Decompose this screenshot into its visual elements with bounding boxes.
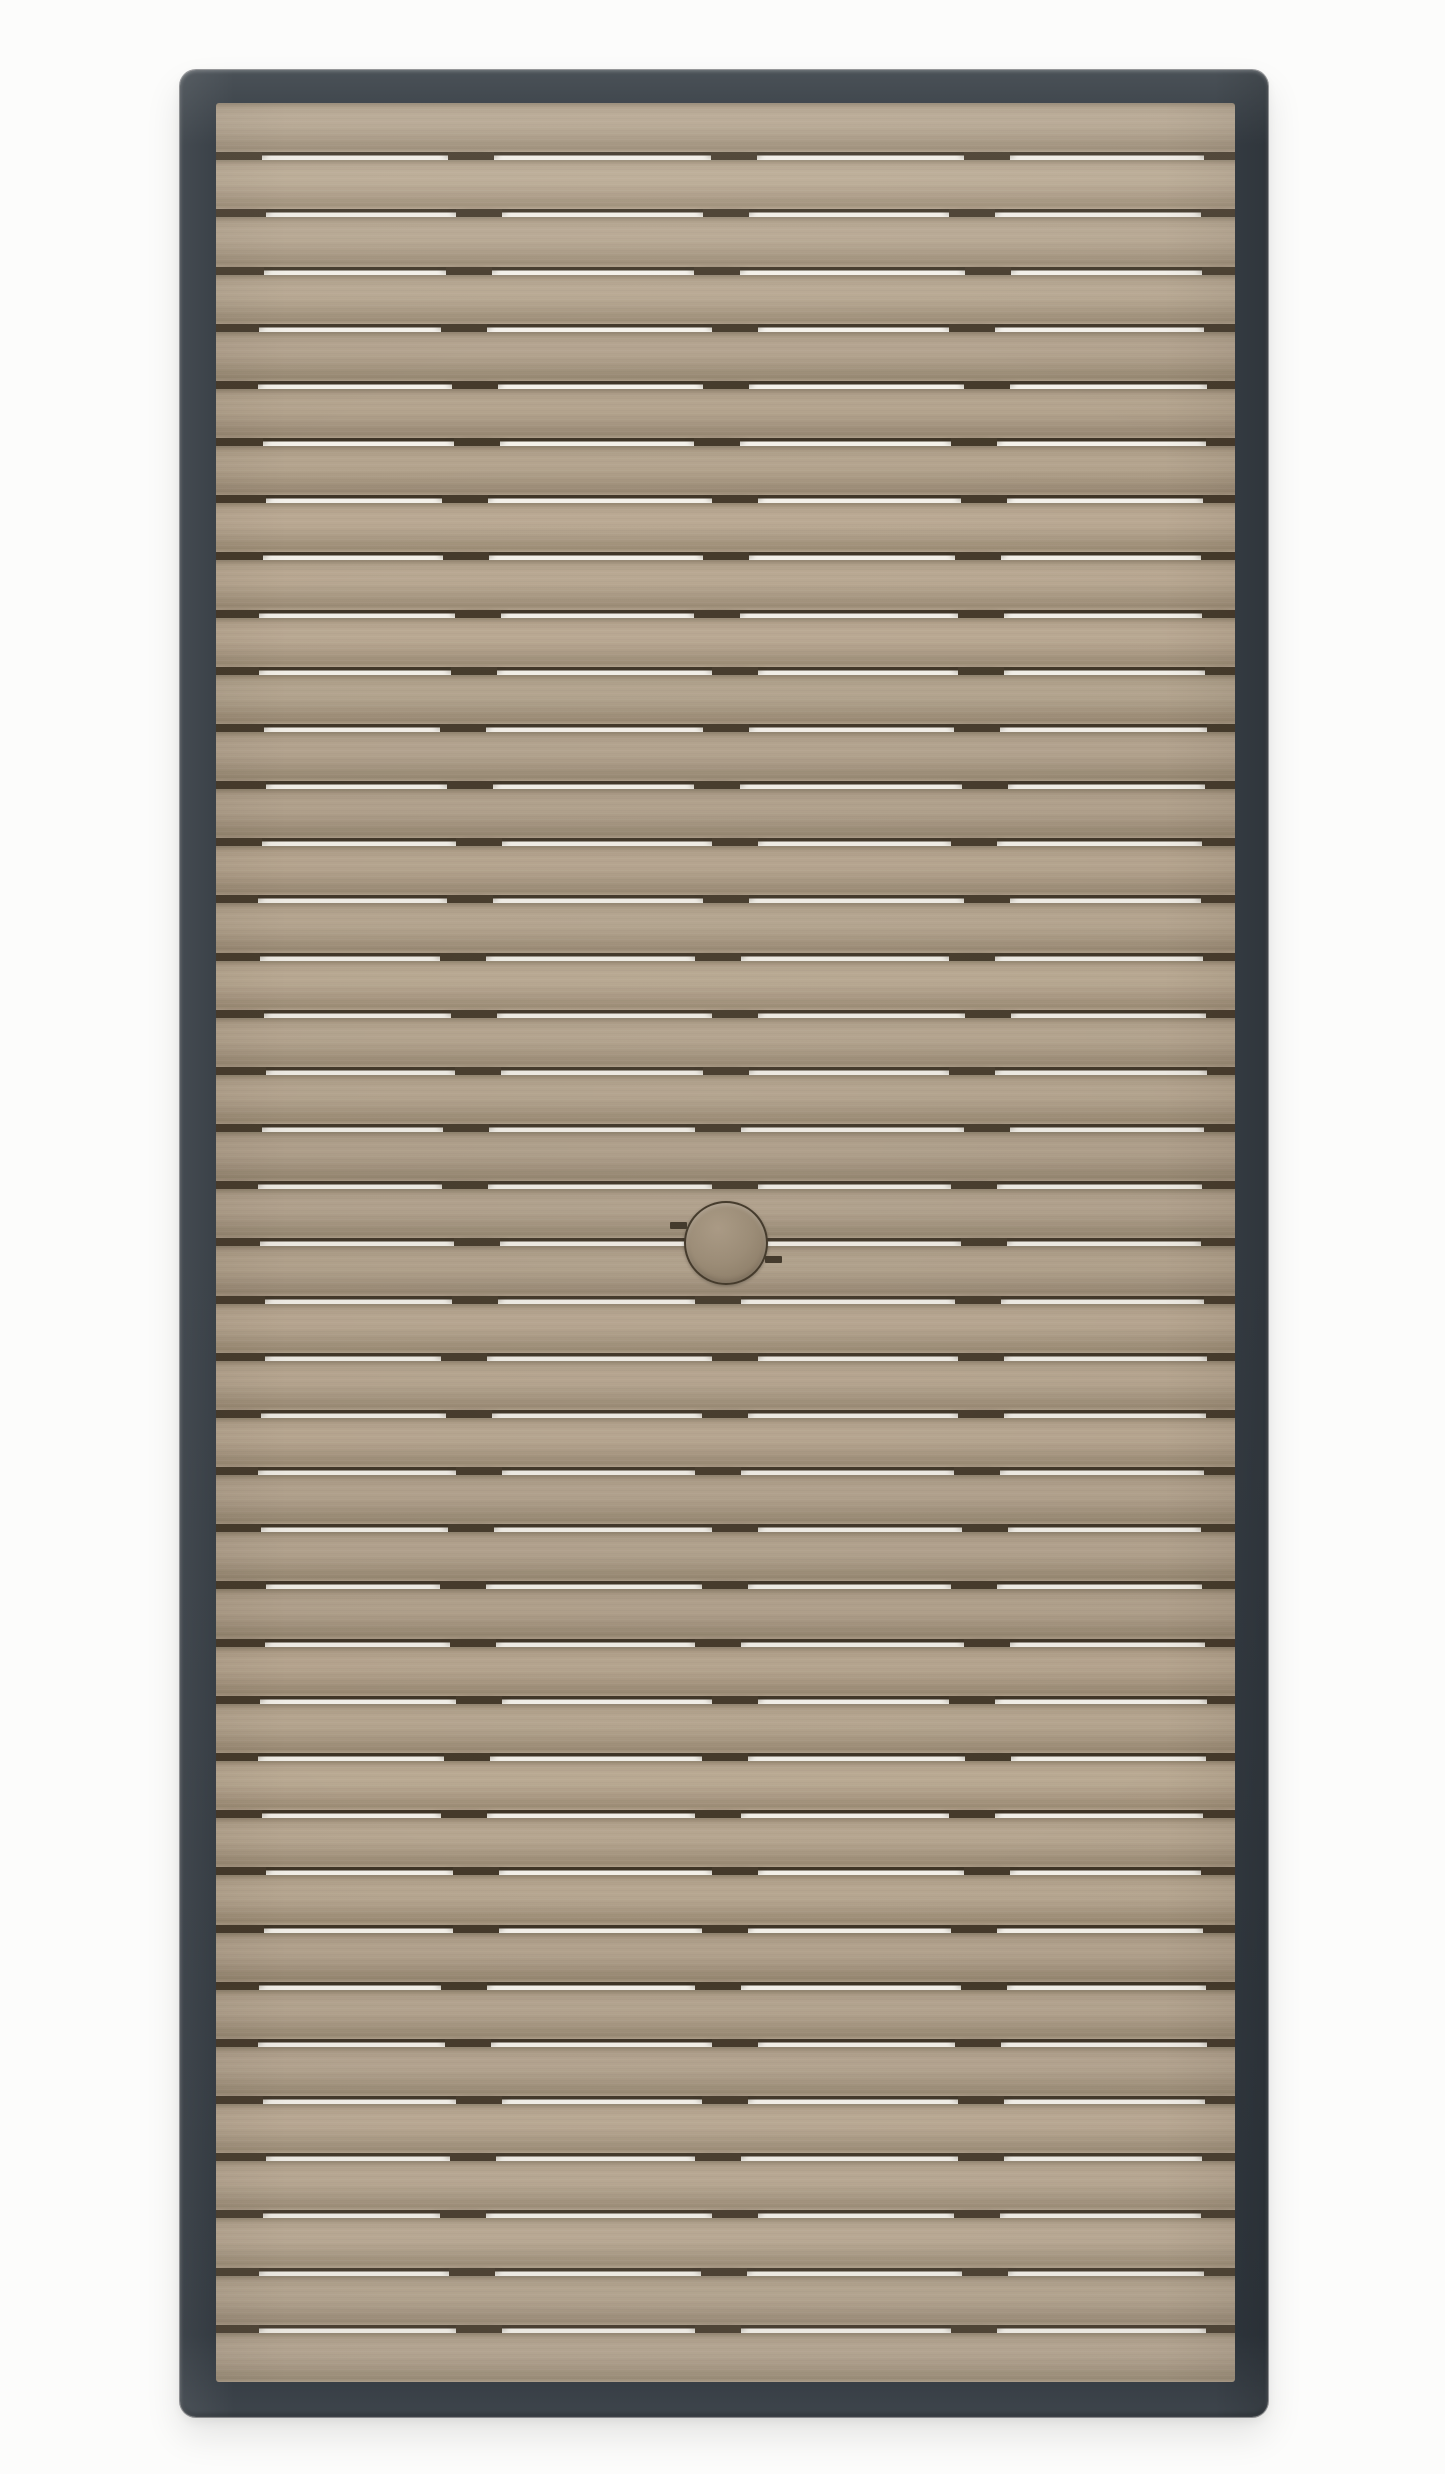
plank-joint-shadow [216,1581,266,1589]
plank-joint-shadow [694,781,740,789]
slat [216,618,1235,667]
plank-joint-shadow [962,781,1008,789]
slat-gap [216,1353,1235,1361]
plank-joint-shadow [216,324,259,332]
plank-joint-shadow [964,895,1010,903]
slat [216,1132,1235,1181]
plank-joint-shadow [954,2210,1000,2218]
slat-gap [216,1696,1235,1704]
plank-joint-shadow [1202,838,1235,846]
slat [216,1075,1235,1124]
slat [216,1532,1235,1581]
plank-joint-shadow [1203,1810,1235,1818]
plank-joint-shadow [1206,1410,1235,1418]
plank-joint-shadow [216,1010,264,1018]
plank-joint-shadow [695,1810,741,1818]
plank-joint-shadow [216,1296,265,1304]
plank-joint-shadow [216,1753,258,1761]
plank-joint-shadow [216,381,258,389]
plank-joint-shadow [701,2268,747,2276]
slat [216,1990,1235,2039]
plank-joint-shadow [955,2039,1001,2047]
slat-gap [216,324,1235,332]
plank-joint-shadow [216,1639,265,1647]
slat [216,2218,1235,2267]
plank-joint-shadow [454,1238,500,1246]
slat-gap [216,724,1235,732]
plank-joint-shadow [951,438,997,446]
plank-joint-shadow [1201,1867,1235,1875]
plank-joint-shadow [1205,667,1235,675]
plank-joint-shadow [450,2153,496,2161]
slat-gap [216,1467,1235,1475]
plank-joint-shadow [216,1124,262,1132]
plank-joint-shadow [1204,324,1235,332]
slat [216,275,1235,324]
plank-joint-shadow [1203,495,1235,503]
plank-joint-shadow [955,552,1001,560]
plank-joint-shadow [1202,1581,1235,1589]
plank-joint-shadow [1204,152,1235,160]
plank-joint-shadow [1203,953,1235,961]
slat-gap [216,1581,1235,1589]
slat-gap [216,838,1235,846]
plank-joint-shadow [1207,381,1235,389]
plank-joint-shadow [702,1581,748,1589]
slat-gap [216,953,1235,961]
plank-joint-shadow [1201,2210,1235,2218]
plank-joint-shadow [453,1867,499,1875]
slat-gap [216,267,1235,275]
slat [216,2104,1235,2153]
slat [216,2047,1235,2096]
slat-gap [216,2268,1235,2276]
plank-joint-shadow [954,724,1000,732]
plank-joint-shadow [712,495,758,503]
plank-joint-shadow [456,2096,502,2104]
slat [216,1933,1235,1982]
plank-joint-shadow [703,895,749,903]
slat [216,846,1235,895]
plank-joint-shadow [441,1353,487,1361]
slat-gap [216,209,1235,217]
plank-joint-shadow [702,2096,748,2104]
plank-joint-shadow [951,838,997,846]
slat-gap [216,1181,1235,1189]
slat [216,961,1235,1010]
plank-joint-shadow [1201,552,1235,560]
plank-joint-shadow [712,1867,758,1875]
plank-joint-shadow [695,1982,741,1990]
plank-joint-shadow [441,1982,487,1990]
plank-joint-shadow [703,381,749,389]
plank-joint-shadow [958,1410,1004,1418]
plank-joint-shadow [216,1524,261,1532]
plank-joint-shadow [711,152,757,160]
plank-joint-shadow [964,1124,1010,1132]
plank-joint-shadow [216,1410,261,1418]
plank-joint-shadow [949,1696,995,1704]
plank-joint-shadow [949,1067,995,1075]
slat [216,1418,1235,1467]
plank-joint-shadow [951,1181,997,1189]
slat-gap [216,1410,1235,1418]
plank-joint-shadow [1207,2039,1235,2047]
plank-joint-shadow [443,1124,489,1132]
plank-joint-shadow [216,724,264,732]
plank-joint-shadow [456,209,502,217]
plank-joint-shadow [961,1238,1007,1246]
slat-gap [216,552,1235,560]
plank-joint-shadow [216,2153,266,2161]
plank-joint-shadow [703,724,749,732]
plank-joint-shadow [1206,1753,1235,1761]
plank-joint-shadow [958,2096,1004,2104]
plank-joint-shadow [961,1982,1007,1990]
plank-joint-shadow [455,1067,501,1075]
plank-joint-shadow [448,152,494,160]
plank-joint-shadow [216,2210,263,2218]
slat-gap [216,1867,1235,1875]
plank-joint-shadow [1204,1467,1235,1475]
plank-joint-shadow [448,1524,494,1532]
plank-joint-shadow [456,838,502,846]
plank-joint-shadow [1207,1696,1235,1704]
plank-joint-shadow [1201,1524,1235,1532]
plank-joint-shadow [712,324,758,332]
plank-joint-shadow [442,1181,488,1189]
plank-joint-shadow [1201,1238,1235,1246]
plank-joint-shadow [216,1467,258,1475]
slat-gap [216,1925,1235,1933]
plank-joint-shadow [702,1925,748,1933]
slat [216,1304,1235,1353]
slat-gap [216,2096,1235,2104]
slat [216,1761,1235,1810]
slat [216,1818,1235,1867]
plank-joint-shadow [964,1867,1010,1875]
plank-joint-shadow [1206,438,1235,446]
slat-gap [216,1067,1235,1075]
plank-joint-shadow [703,1067,749,1075]
plank-joint-shadow [440,953,486,961]
slat-gap [216,1982,1235,1990]
plank-joint-shadow [440,724,486,732]
plank-joint-shadow [1207,724,1235,732]
plank-joint-shadow [216,209,266,217]
plank-joint-shadow [216,2039,258,2047]
plank-joint-shadow [962,2268,1008,2276]
plank-joint-shadow [1201,209,1235,217]
slat [216,1361,1235,1410]
plank-joint-shadow [447,895,493,903]
plank-joint-shadow [445,2039,491,2047]
plank-joint-shadow [694,438,740,446]
plank-joint-shadow [456,1467,502,1475]
plank-joint-shadow [958,667,1004,675]
plank-joint-shadow [703,209,749,217]
plank-joint-shadow [958,2153,1004,2161]
slat [216,2276,1235,2325]
slat-gap [216,667,1235,675]
plank-joint-shadow [216,781,266,789]
plank-joint-shadow [453,1925,499,1933]
plank-joint-shadow [216,2096,263,2104]
slat-gap [216,1010,1235,1018]
slat [216,217,1235,266]
plank-joint-shadow [712,2210,758,2218]
slat-gap [216,1810,1235,1818]
plank-joint-shadow [449,2268,495,2276]
plank-joint-shadow [1205,781,1235,789]
plank-joint-shadow [456,1696,502,1704]
slat-gap [216,495,1235,503]
plank-joint-shadow [702,1753,748,1761]
plank-joint-shadow [216,438,263,446]
slat-gap [216,2210,1235,2218]
slat [216,560,1235,609]
slat [216,1704,1235,1753]
plank-joint-shadow [216,895,258,903]
slat-gap [216,610,1235,618]
plank-joint-shadow [440,1581,486,1589]
slat [216,1875,1235,1924]
plank-joint-shadow [695,1296,741,1304]
plank-joint-shadow [1202,1181,1235,1189]
table-top [180,70,1268,2417]
plank-joint-shadow [216,552,263,560]
slat-gap [216,381,1235,389]
plank-joint-shadow [216,152,262,160]
slat-gap [216,438,1235,446]
plank-joint-shadow [443,552,489,560]
plank-joint-shadow [216,1238,260,1246]
plank-joint-shadow [695,1124,741,1132]
plank-joint-shadow [1202,610,1235,618]
plank-joint-shadow [712,1696,758,1704]
slat-gap [216,1296,1235,1304]
slat-gap [216,1524,1235,1532]
plank-joint-shadow [450,1639,496,1647]
plank-joint-shadow [441,1810,487,1818]
plank-joint-shadow [216,2325,259,2333]
plank-joint-shadow [216,1181,258,1189]
plank-joint-shadow [1204,1296,1235,1304]
slat [216,1018,1235,1067]
slat-gap [216,2325,1235,2333]
plank-joint-shadow [456,2325,502,2333]
plank-joint-shadow [965,1753,1011,1761]
plank-joint-shadow [712,838,758,846]
plank-joint-shadow [695,953,741,961]
plank-joint-shadow [216,1067,266,1075]
plank-joint-shadow [964,381,1010,389]
plank-joint-shadow [712,1010,758,1018]
plank-joint-shadow [949,324,995,332]
plank-joint-shadow [216,1353,265,1361]
slat [216,732,1235,781]
slat [216,1475,1235,1524]
slat [216,675,1235,724]
plank-joint-shadow [1205,2096,1235,2104]
slat [216,103,1235,152]
plank-joint-shadow [216,1982,259,1990]
slat [216,160,1235,209]
plank-joint-shadow [695,2325,741,2333]
plank-joint-shadow [447,781,493,789]
plank-joint-shadow [712,667,758,675]
plank-joint-shadow [216,1696,260,1704]
slat-gap [216,781,1235,789]
plank-joint-shadow [964,152,1010,160]
slat [216,2161,1235,2210]
plank-joint-shadow [712,1181,758,1189]
slat-gap [216,2153,1235,2161]
plank-joint-shadow [1206,1010,1235,1018]
plank-joint-shadow [965,267,1011,275]
plank-joint-shadow [216,495,266,503]
slat-gap [216,1639,1235,1647]
slat-area [216,103,1235,2382]
plank-joint-shadow [1207,1067,1235,1075]
slat [216,389,1235,438]
slat-gap [216,1753,1235,1761]
plank-joint-shadow [455,610,501,618]
plank-joint-shadow [949,209,995,217]
slat-gap [216,1124,1235,1132]
plank-joint-shadow [712,1353,758,1361]
plank-joint-shadow [216,2268,259,2276]
plank-joint-shadow [1207,1353,1235,1361]
plank-joint-shadow [441,324,487,332]
plank-joint-shadow [216,953,260,961]
slat-gap [216,152,1235,160]
plank-joint-shadow [1206,2325,1235,2333]
plank-joint-shadow [216,838,262,846]
plank-joint-shadow [1202,2153,1235,2161]
slat [216,789,1235,838]
plank-joint-shadow [955,1296,1001,1304]
plank-joint-shadow [452,381,498,389]
plank-joint-shadow [216,610,259,618]
photo-stage [0,0,1445,2474]
plank-joint-shadow [451,1010,497,1018]
plank-joint-shadow [695,1639,741,1647]
plank-joint-shadow [1202,267,1235,275]
plank-joint-shadow [961,495,1007,503]
plank-joint-shadow [965,1010,1011,1018]
slat [216,1647,1235,1696]
plank-joint-shadow [964,1639,1010,1647]
slat [216,2333,1235,2382]
plank-joint-shadow [1206,1982,1235,1990]
plank-joint-shadow [442,495,488,503]
plank-joint-shadow [694,267,740,275]
slat [216,332,1235,381]
plank-joint-shadow [951,2325,997,2333]
plank-joint-shadow [1204,1124,1235,1132]
slat [216,903,1235,952]
plank-joint-shadow [1203,1925,1235,1933]
plank-joint-shadow [444,1753,490,1761]
plank-joint-shadow [949,1810,995,1818]
plank-joint-shadow [954,1467,1000,1475]
plank-joint-shadow [1201,895,1235,903]
plank-joint-shadow [703,552,749,560]
slat [216,446,1235,495]
slat [216,1589,1235,1638]
plank-joint-shadow [452,1296,498,1304]
plank-joint-shadow [1204,2268,1235,2276]
plank-joint-shadow [216,667,259,675]
slat [216,503,1235,552]
plank-joint-shadow [1205,1639,1235,1647]
plank-joint-shadow [446,1410,492,1418]
plank-joint-shadow [695,2153,741,2161]
umbrella-hole-plug [684,1201,768,1285]
plank-joint-shadow [951,1925,997,1933]
plank-joint-shadow [446,267,492,275]
plank-joint-shadow [962,1524,1008,1532]
plank-joint-shadow [216,1867,266,1875]
slat-gap [216,2039,1235,2047]
plank-joint-shadow [695,1467,741,1475]
plank-joint-shadow [440,2210,486,2218]
plank-joint-shadow [216,267,264,275]
plank-joint-shadow [694,610,740,618]
plank-joint-shadow [951,1581,997,1589]
plank-joint-shadow [216,1925,264,1933]
plank-joint-shadow [949,953,995,961]
plank-joint-shadow [451,667,497,675]
plank-joint-shadow [958,610,1004,618]
plank-joint-shadow [454,438,500,446]
slat-gap [216,895,1235,903]
plank-joint-shadow [712,2039,758,2047]
plank-joint-shadow [216,1810,262,1818]
plank-joint-shadow [958,1353,1004,1361]
plank-joint-shadow [712,1524,758,1532]
plank-joint-shadow [702,1410,748,1418]
